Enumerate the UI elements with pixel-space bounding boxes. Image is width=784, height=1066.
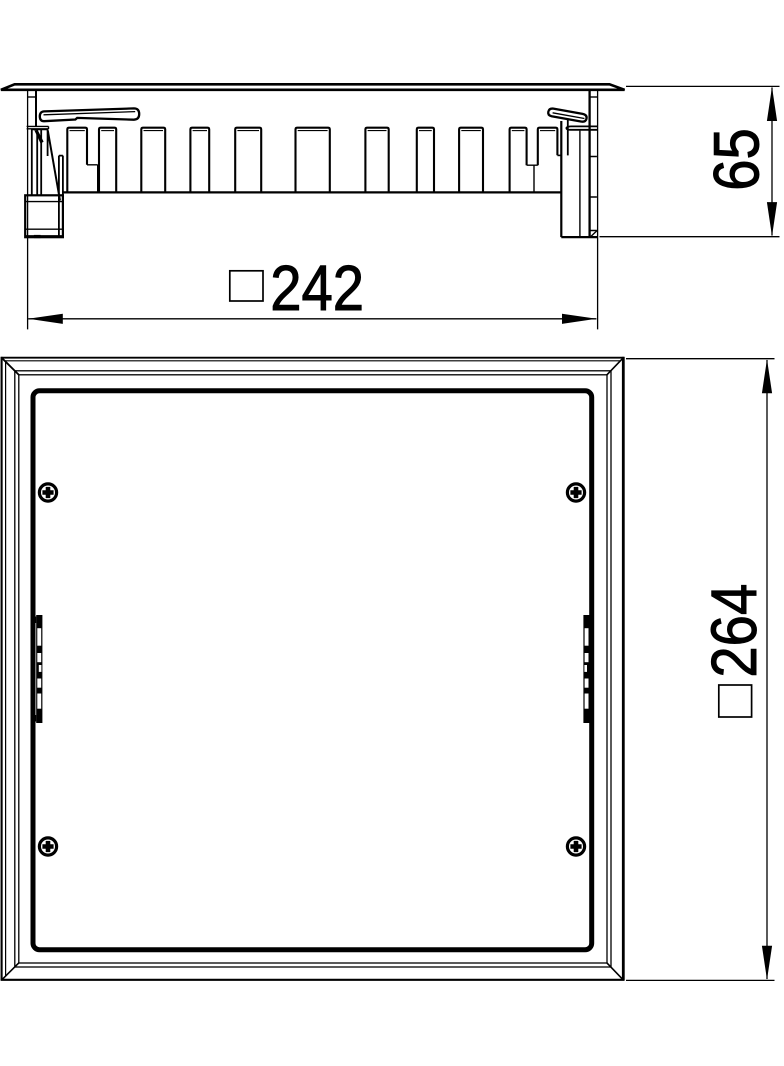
- svg-text:242: 242: [270, 252, 364, 324]
- svg-text:65: 65: [700, 128, 772, 191]
- svg-text:264: 264: [698, 584, 770, 678]
